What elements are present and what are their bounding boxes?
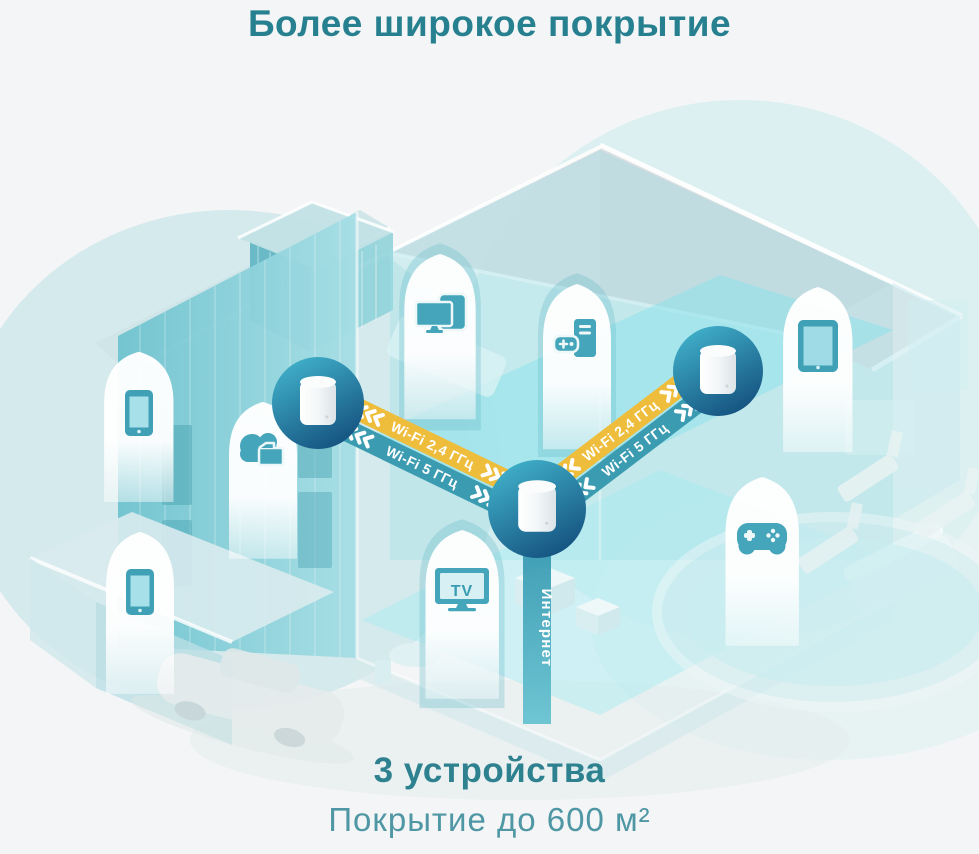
devices-count-text: 3 устройства bbox=[0, 751, 979, 791]
coverage-text: Покрытие до 600 м² bbox=[0, 801, 979, 839]
smartphone-icon bbox=[126, 569, 154, 615]
tv-label: TV bbox=[451, 583, 473, 600]
smartphone-icon bbox=[125, 390, 153, 436]
deco-unit-right bbox=[673, 326, 763, 416]
gamepad-icon bbox=[737, 523, 787, 555]
internet-label: Интернет bbox=[538, 589, 555, 668]
pool bbox=[657, 517, 979, 707]
poster: Более широкое покрытие bbox=[0, 0, 979, 854]
deco-unit-left bbox=[272, 357, 364, 449]
scene-svg: Интернет bbox=[0, 0, 979, 854]
deco-unit-center bbox=[488, 460, 586, 558]
tablet-icon bbox=[798, 320, 838, 372]
